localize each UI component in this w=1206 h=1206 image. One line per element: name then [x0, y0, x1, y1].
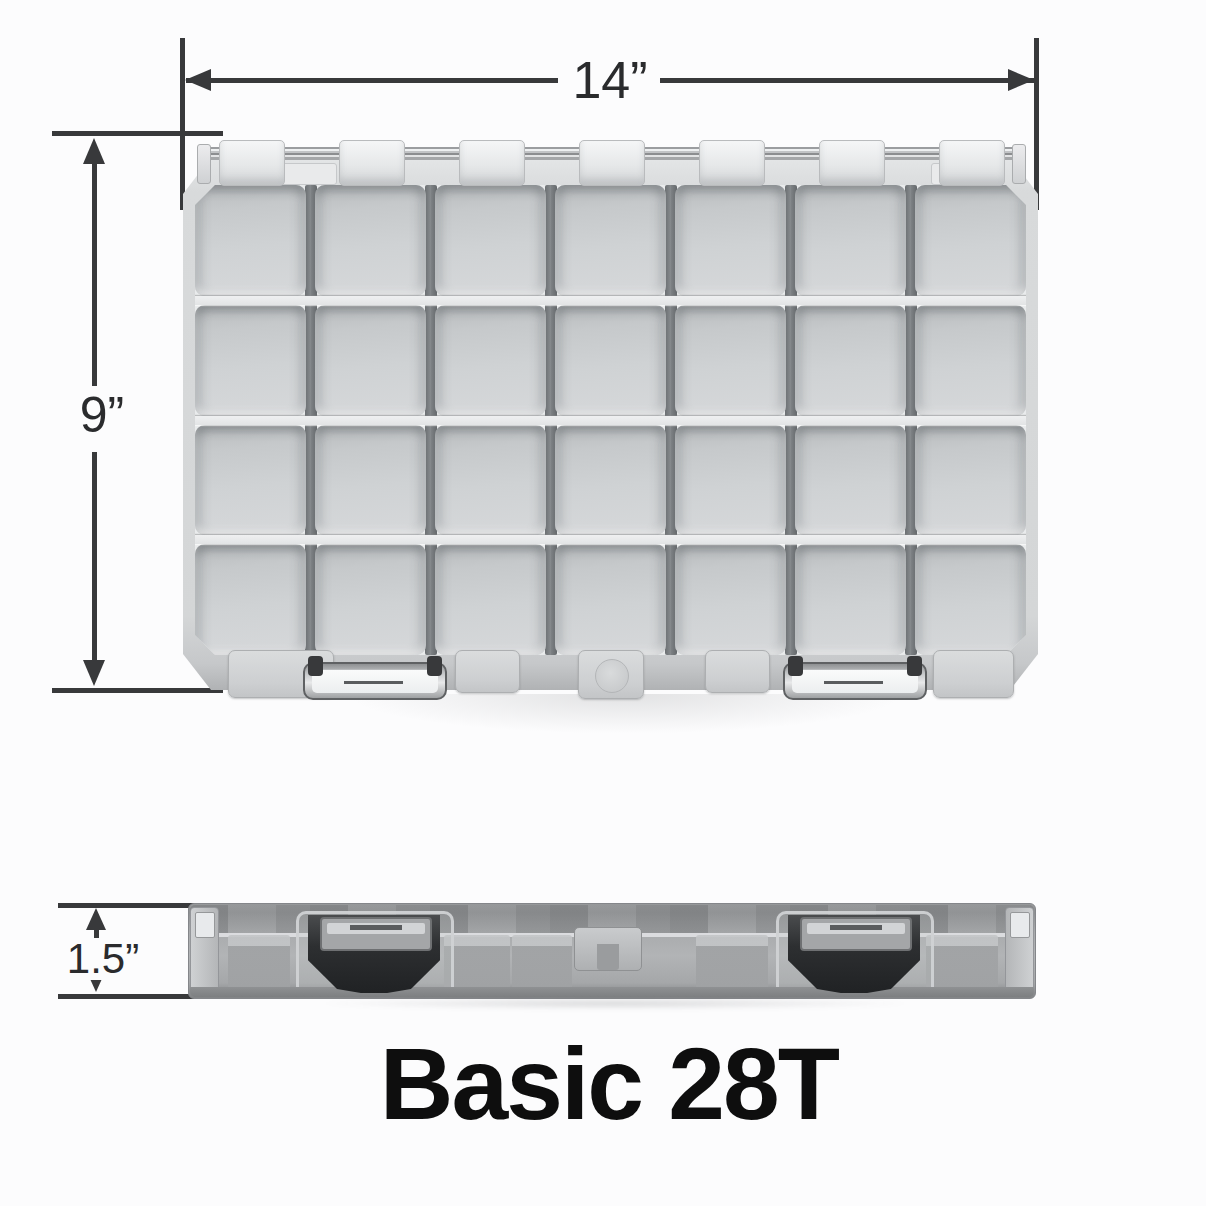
height-dimension-label: 1.5”: [48, 938, 158, 980]
width-dimension-line-left-segment: [186, 78, 558, 83]
compartment-cell: [315, 544, 426, 655]
side-center-tab: [574, 927, 642, 971]
side-latch-bail-left: [320, 917, 432, 951]
compartment-cell: [315, 305, 426, 416]
compartment-cell: [915, 425, 1026, 536]
depth-dimension-label: 9”: [52, 390, 152, 440]
side-divider-block: [228, 935, 290, 989]
latch-bail-bar: [344, 681, 403, 684]
compartment-cell: [435, 305, 546, 416]
side-bottom-strip: [190, 987, 1034, 997]
hinge-knuckle: [579, 140, 645, 186]
top-latch-left: [303, 658, 447, 700]
hinge-knuckle: [219, 140, 285, 186]
latch-hook-right: [427, 656, 442, 676]
depth-arrow-down-icon: [83, 660, 105, 686]
height-arrow-up-icon: [86, 908, 106, 930]
latch-hook-left: [788, 656, 803, 676]
compartment-cell: [795, 305, 906, 416]
box-body: [183, 160, 1038, 690]
height-extension-line-bottom: [58, 994, 208, 999]
compartment-cell: [195, 425, 306, 536]
depth-extension-line-top: [52, 131, 223, 136]
latch-bail: [783, 662, 927, 700]
compartment-grid: [195, 185, 1026, 655]
side-end-cap-right: [1005, 907, 1034, 995]
side-center-tab-notch: [597, 944, 619, 970]
compartment-cell: [675, 185, 786, 296]
compartment-cell: [195, 544, 306, 655]
center-hinge-knob: [595, 659, 629, 693]
width-dimension-label: 14”: [548, 54, 672, 106]
top-latch-right: [783, 658, 927, 700]
compartment-cell: [675, 544, 786, 655]
side-end-window: [195, 912, 215, 938]
compartment-cell: [195, 305, 306, 416]
side-divider-block: [696, 935, 768, 989]
bottom-tab-right: [933, 650, 1014, 698]
side-end-window: [1010, 912, 1030, 938]
product-dimension-diagram: 14” 9” 1.5”: [0, 0, 1206, 1206]
side-end-cap-left: [190, 907, 219, 995]
depth-arrow-up-icon: [83, 138, 105, 164]
side-view: [188, 903, 1036, 999]
compartment-cell: [915, 305, 1026, 416]
latch-bail: [303, 662, 447, 700]
latch-hook-left: [308, 656, 323, 676]
top-view-shadow: [255, 694, 995, 794]
row-divider: [195, 535, 1026, 544]
compartment-cell: [555, 425, 666, 536]
center-hinge-tab: [578, 650, 644, 699]
compartment-cell: [555, 544, 666, 655]
row-divider: [195, 416, 1026, 425]
compartment-cell: [315, 425, 426, 536]
side-divider-block: [926, 935, 998, 989]
compartment-cell: [675, 425, 786, 536]
width-arrow-left-icon: [185, 69, 211, 91]
compartment-cell: [435, 425, 546, 536]
hinge-end-cap-left: [197, 144, 211, 184]
product-title: Basic 28T: [6, 1033, 1206, 1135]
bottom-tab-mid-left: [455, 650, 520, 693]
width-dimension-line-right-segment: [660, 78, 1034, 83]
row-divider: [195, 296, 1026, 305]
depth-dimension-line-bottom-segment: [92, 452, 97, 662]
compartment-cell: [195, 185, 306, 296]
compartment-cell: [435, 544, 546, 655]
compartment-cell: [555, 305, 666, 416]
width-arrow-right-icon: [1008, 69, 1034, 91]
hinge-knuckle: [939, 140, 1005, 186]
latch-hook-right: [907, 656, 922, 676]
compartment-cell: [555, 185, 666, 296]
hinge-end-cap-right: [1012, 144, 1026, 184]
side-divider-block: [512, 935, 572, 989]
hinge-knuckle: [459, 140, 525, 186]
compartment-cell: [795, 544, 906, 655]
hinge-knuckle: [699, 140, 765, 186]
compartment-cell: [915, 185, 1026, 296]
depth-dimension-line-top-segment: [92, 160, 97, 386]
hinge-knuckle: [819, 140, 885, 186]
compartment-cell: [435, 185, 546, 296]
compartment-cell: [675, 305, 786, 416]
side-latch-bail-right: [800, 917, 912, 951]
side-view-shadow: [200, 998, 1030, 1016]
compartment-cell: [795, 425, 906, 536]
hinge-knuckle: [339, 140, 405, 186]
compartment-cell: [795, 185, 906, 296]
compartment-cell: [915, 544, 1026, 655]
compartment-cell: [315, 185, 426, 296]
height-extension-line-top: [58, 903, 208, 908]
latch-bail-bar: [824, 681, 883, 684]
bottom-tab-mid-right: [705, 650, 770, 693]
bail-slot: [830, 925, 882, 930]
top-view: [183, 138, 1038, 702]
bail-slot: [350, 925, 402, 930]
